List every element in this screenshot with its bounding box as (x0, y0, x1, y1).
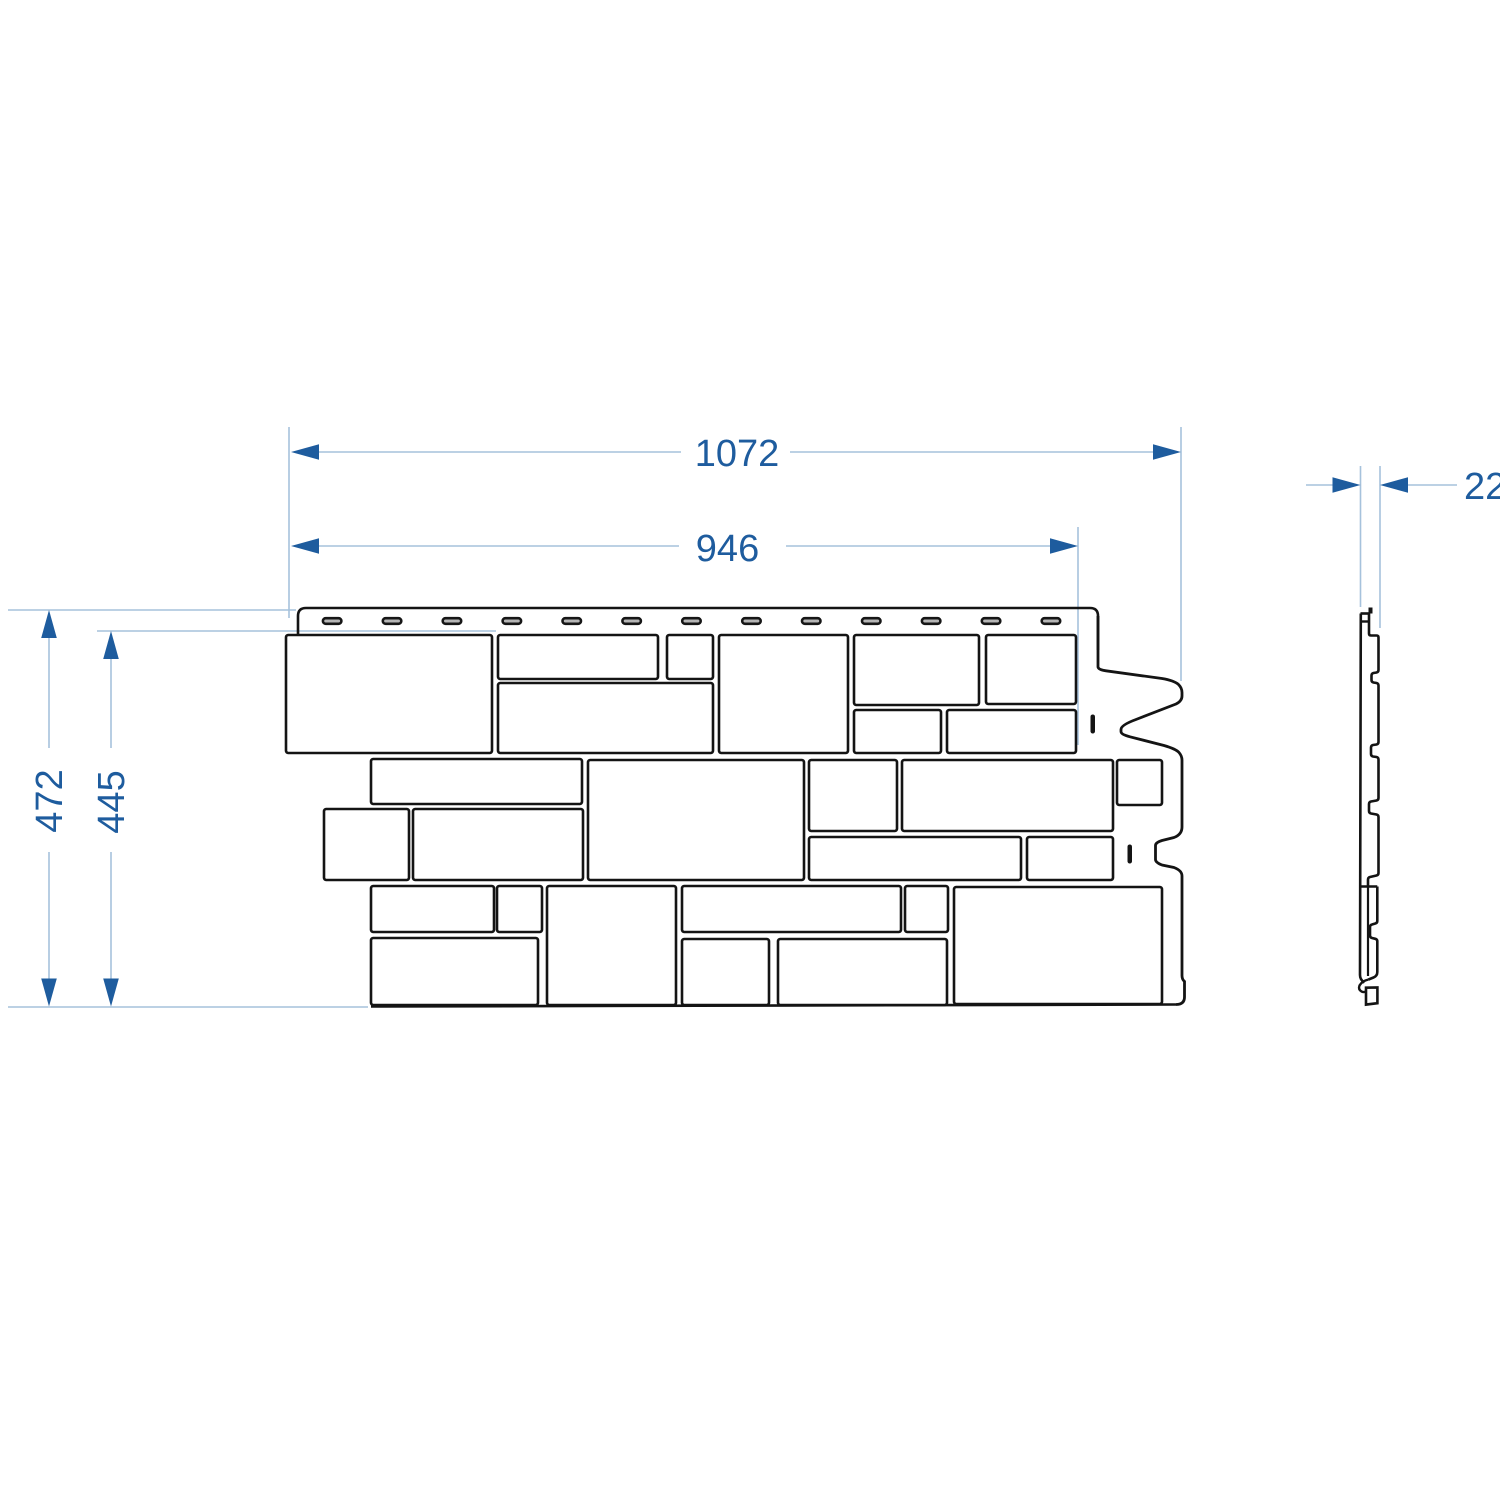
svg-text:472: 472 (29, 769, 71, 832)
svg-text:1072: 1072 (695, 433, 780, 475)
svg-text:445: 445 (91, 770, 133, 833)
svg-text:22: 22 (1464, 466, 1500, 508)
svg-text:946: 946 (696, 528, 759, 570)
